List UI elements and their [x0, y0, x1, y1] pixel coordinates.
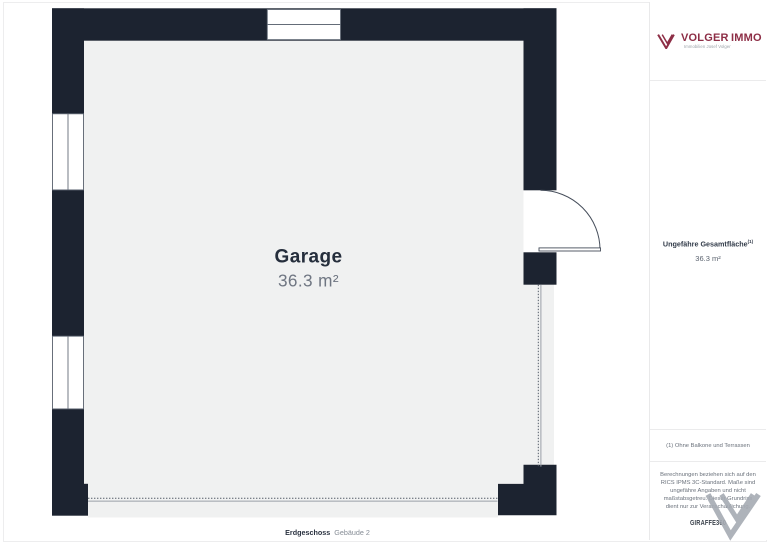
- svg-text:Garage: Garage: [275, 246, 343, 267]
- svg-text:36.3 m²: 36.3 m²: [278, 270, 339, 290]
